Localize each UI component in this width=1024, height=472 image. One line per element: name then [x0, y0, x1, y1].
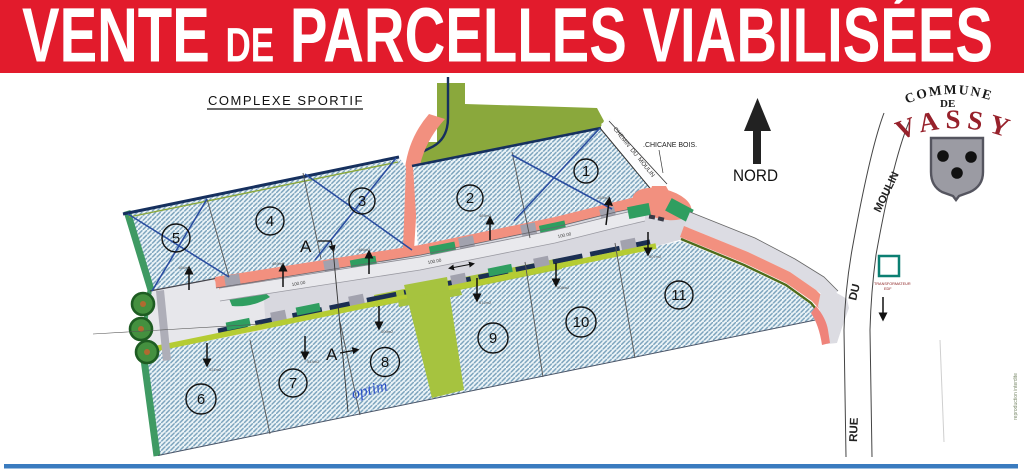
svg-text:1: 1 — [582, 163, 590, 180]
svg-text:455m2: 455m2 — [597, 195, 610, 200]
svg-text:RUE: RUE — [848, 417, 861, 442]
svg-text:A: A — [300, 237, 312, 256]
svg-text:11: 11 — [671, 287, 687, 304]
svg-text:8: 8 — [381, 354, 389, 371]
svg-text:EDF: EDF — [884, 287, 892, 291]
svg-text:reproduction interdite: reproduction interdite — [1013, 373, 1019, 420]
svg-text:7: 7 — [289, 375, 297, 392]
svg-text:A: A — [326, 345, 338, 364]
svg-text:.CHICANE BOIS.: .CHICANE BOIS. — [643, 142, 697, 149]
svg-text:6: 6 — [197, 391, 205, 408]
svg-text:COMPLEXE SPORTIF: COMPLEXE SPORTIF — [208, 93, 364, 108]
svg-text:466m2: 466m2 — [358, 247, 371, 252]
svg-text:9: 9 — [489, 330, 497, 347]
svg-text:TRANSFORMATEUR: TRANSFORMATEUR — [874, 282, 911, 286]
svg-text:521m2: 521m2 — [209, 367, 222, 372]
svg-text:VENTE DE PARCELLES VIABILISÉES: VENTE DE PARCELLES VIABILISÉES — [22, 0, 993, 79]
svg-text:2: 2 — [466, 190, 474, 207]
svg-text:459m2: 459m2 — [272, 261, 285, 266]
svg-text:10: 10 — [573, 314, 590, 331]
svg-text:3: 3 — [358, 193, 366, 210]
svg-text:465m2: 465m2 — [178, 265, 191, 270]
svg-text:512m2: 512m2 — [479, 300, 492, 305]
svg-text:507m2: 507m2 — [649, 254, 662, 259]
svg-text:508m2: 508m2 — [557, 285, 570, 290]
svg-text:514m2: 514m2 — [307, 359, 320, 364]
svg-text:5: 5 — [172, 230, 180, 247]
svg-text:NORD: NORD — [733, 166, 778, 185]
svg-text:509m2: 509m2 — [381, 329, 394, 334]
svg-text:483m2: 483m2 — [479, 213, 492, 218]
svg-text:4: 4 — [266, 213, 274, 230]
